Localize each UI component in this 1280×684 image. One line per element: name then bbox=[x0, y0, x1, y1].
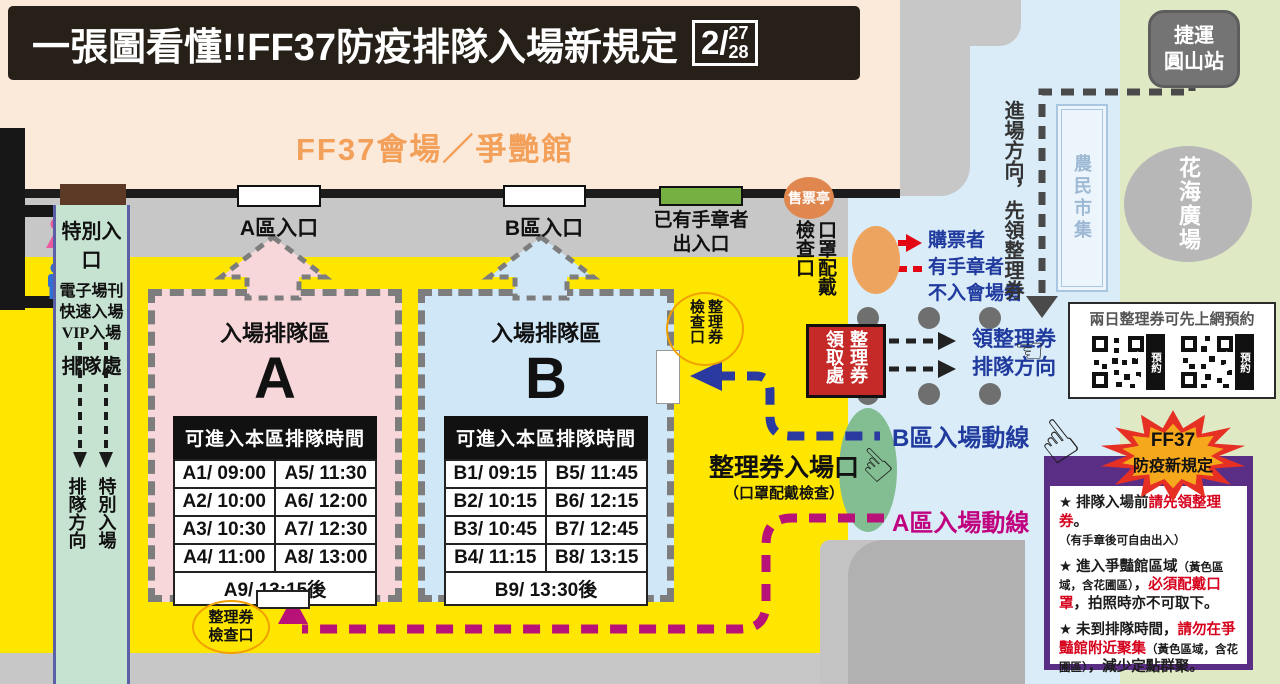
qr-unit-day1: 預約2/27 bbox=[1090, 334, 1165, 390]
qr-unit-day2: 預約2/28 bbox=[1179, 334, 1254, 390]
ticket-booth-label: 售票亭 bbox=[788, 188, 830, 208]
rule-item-3: ★ 未到排隊時間，請勿在爭豔館附近聚集（黃色區域，含花圃區），減少定點群聚。 bbox=[1059, 621, 1238, 677]
route-a-path bbox=[302, 518, 884, 629]
ticket-booth: 售票亭 bbox=[784, 177, 834, 219]
burst-line2: 防疫新規定 bbox=[1098, 452, 1248, 476]
mrt-line1: 捷運 bbox=[1164, 23, 1224, 49]
page-title: 一張圖看懂!!FF37防疫排隊入場新規定 bbox=[8, 16, 678, 71]
rules-content: ★ 排隊入場前請先領整理券。（有手章後可自由出入） ★ 進入爭豔館區域（黃色區域… bbox=[1050, 486, 1247, 664]
ticket-office: 整理券 領取處 bbox=[806, 324, 886, 398]
arrow-a-entrance bbox=[221, 237, 325, 298]
mask-check-line1: 口罩配戴 bbox=[814, 220, 836, 330]
qr-label-day2: 預約2/28 bbox=[1235, 334, 1254, 390]
stamp-exit-label: 已有手章者 出入口 bbox=[645, 209, 757, 257]
ticket-office-line2: 領取處 bbox=[822, 330, 846, 392]
entrance-a-gate bbox=[237, 185, 321, 207]
pointer-hand-icon: ☜ bbox=[1014, 334, 1044, 368]
qr-reservation-box: 兩日整理券可先上網預約 預約2/27 預約2/28 bbox=[1068, 302, 1276, 399]
flower-plaza-label: 花海廣場 bbox=[1172, 156, 1204, 252]
farmers-market-label: 農民市集 bbox=[1069, 154, 1095, 242]
stamp-exit-gate bbox=[659, 186, 743, 206]
stamp-exit-line1: 已有手章者 bbox=[645, 209, 757, 233]
special-queue-arrows bbox=[80, 342, 106, 452]
mask-check-line2: 檢查口 bbox=[792, 220, 814, 330]
route-a-label: A區入場動線 bbox=[892, 503, 1029, 538]
rules-burst: FF37 防疫新規定 bbox=[1098, 408, 1248, 504]
mask-check-label: 口罩配戴 檢查口 bbox=[792, 220, 836, 330]
title-bar: 一張圖看懂!!FF37防疫排隊入場新規定 2/ 2728 bbox=[8, 6, 860, 80]
ticket-entrance-subtitle: （口罩配戴檢查） bbox=[698, 482, 870, 503]
checkpoint-b-line1: 整理券 bbox=[705, 299, 723, 359]
farmers-market: 農民市集 bbox=[1056, 104, 1108, 292]
ticket-office-line1: 整理券 bbox=[846, 330, 870, 392]
entrance-b-label: B區入口 bbox=[484, 212, 604, 242]
arrow-b-entrance bbox=[489, 237, 593, 298]
date-month: 2/ bbox=[701, 24, 729, 62]
date-day2: 28 bbox=[729, 43, 749, 62]
checkpoint-a-label: 整理券 檢查口 bbox=[192, 600, 270, 654]
date-badge: 2/ 2728 bbox=[692, 20, 758, 66]
checkpoint-a-slot bbox=[256, 590, 310, 609]
mask-check-gate bbox=[852, 226, 900, 294]
entrance-a-label: A區入口 bbox=[219, 212, 339, 242]
approach-note: 進場方向，先領整理券 bbox=[998, 100, 1027, 318]
qr-label-day1: 預約2/27 bbox=[1146, 334, 1165, 390]
checkpoint-b-slot bbox=[656, 350, 680, 404]
stamp-exit-line2: 出入口 bbox=[645, 233, 757, 257]
rule-item-2: ★ 進入爭豔館區域（黃色區域，含花圃區），必須配戴口罩，拍照時亦不可取下。 bbox=[1059, 558, 1238, 614]
entrance-b-gate bbox=[503, 185, 586, 207]
burst-line1: FF37 bbox=[1098, 430, 1248, 452]
hall-label: FF37會場／爭艷館 bbox=[296, 124, 574, 169]
infographic-canvas: 女廁 男廁 特別入口 電子場刊 快速入場 VIP入場 排隊處 特別入場 排隊方向… bbox=[0, 0, 1280, 684]
route-b-label: B區入場動線 bbox=[892, 418, 1029, 453]
checkpoint-b-label: 整理券 檢查口 bbox=[666, 292, 744, 366]
mrt-station: 捷運 圓山站 bbox=[1148, 10, 1240, 88]
qr-title: 兩日整理券可先上網預約 bbox=[1070, 308, 1274, 329]
checkpoint-a-line2: 檢查口 bbox=[208, 627, 253, 645]
checkpoint-b-line2: 檢查口 bbox=[687, 299, 705, 359]
flower-plaza: 花海廣場 bbox=[1124, 146, 1252, 262]
ticket-entrance-title: 整理券入場口 bbox=[698, 448, 870, 484]
mrt-line2: 圓山站 bbox=[1164, 49, 1224, 75]
date-day1: 27 bbox=[729, 24, 749, 43]
checkpoint-a-line1: 整理券 bbox=[208, 609, 253, 627]
